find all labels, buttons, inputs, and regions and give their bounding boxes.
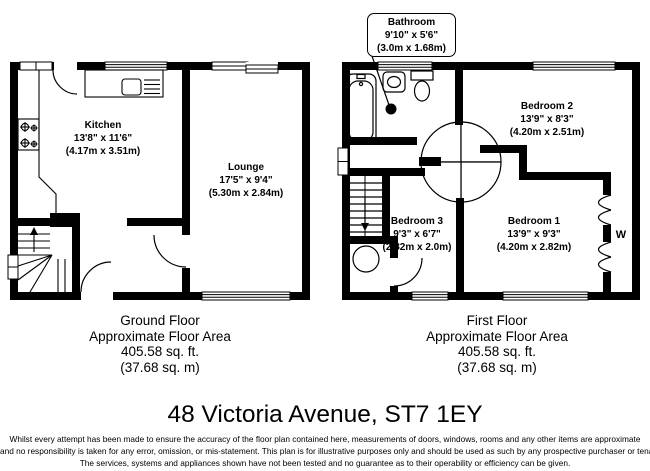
disclaimer-line: Whilst every attempt has been made to en… — [0, 433, 650, 445]
room-name: Bedroom 3 — [357, 215, 477, 228]
bedroom1-label: Bedroom 1 13'9" x 9'3" (4.20m x 2.82m) — [474, 215, 594, 254]
room-dims-metric: (4.17m x 3.51m) — [43, 145, 163, 158]
area-metric: (37.68 sq. m) — [60, 360, 260, 376]
stairs-up-icon — [18, 227, 65, 292]
callout-marker-dot — [386, 104, 397, 115]
room-dims-metric: (2.82m x 2.0m) — [357, 241, 477, 254]
callout-dims-metric: (3.0m x 1.68m) — [368, 42, 455, 55]
bedroom3-label: Bedroom 3 9'3" x 6'7" (2.82m x 2.0m) — [357, 215, 477, 254]
area-imperial: 405.58 sq. ft. — [397, 344, 597, 360]
address-title: 48 Victoria Avenue, ST7 1EY — [0, 401, 650, 429]
room-dims-imperial: 17'5" x 9'4" — [186, 174, 306, 187]
room-dims-imperial: 13'9" x 8'3" — [487, 113, 607, 126]
bedroom2-label: Bedroom 2 13'9" x 8'3" (4.20m x 2.51m) — [487, 100, 607, 139]
room-dims-imperial: 13'8" x 11'6" — [43, 132, 163, 145]
lounge-label: Lounge 17'5" x 9'4" (5.30m x 2.84m) — [186, 161, 306, 200]
room-dims-metric: (4.20m x 2.51m) — [487, 126, 607, 139]
room-dims-metric: (5.30m x 2.84m) — [186, 187, 306, 200]
room-dims-imperial: 13'9" x 9'3" — [474, 228, 594, 241]
room-name: Bedroom 1 — [474, 215, 594, 228]
first-floor-caption: First Floor Approximate Floor Area 405.5… — [397, 313, 597, 375]
room-name: Lounge — [186, 161, 306, 174]
area-label: Approximate Floor Area — [60, 329, 260, 345]
room-name: Bedroom 2 — [487, 100, 607, 113]
kitchen-door-arc — [53, 70, 77, 94]
callout-dims-imperial: 9'10" x 5'6" — [368, 29, 455, 42]
kitchen-sink-icon — [85, 70, 163, 97]
area-imperial: 405.58 sq. ft. — [60, 344, 260, 360]
bath-icon — [346, 74, 376, 144]
area-label: Approximate Floor Area — [397, 329, 597, 345]
lounge-door-arc — [154, 235, 186, 267]
room-dims-imperial: 9'3" x 6'7" — [357, 228, 477, 241]
wardrobe-label: W — [609, 229, 633, 241]
disclaimer-text: Whilst every attempt has been made to en… — [0, 433, 650, 469]
washbasin-icon — [383, 72, 405, 92]
callout-room-name: Bathroom — [368, 16, 455, 29]
toilet-icon — [411, 71, 433, 101]
area-metric: (37.68 sq. m) — [397, 360, 597, 376]
room-dims-metric: (4.20m x 2.82m) — [474, 241, 594, 254]
ground-floor-caption: Ground Floor Approximate Floor Area 405.… — [60, 313, 260, 375]
floor-name: Ground Floor — [60, 313, 260, 329]
floor-plan-page: Kitchen 13'8" x 11'6" (4.17m x 3.51m) Lo… — [0, 0, 650, 471]
disclaimer-line: The services, systems and appliances sho… — [0, 457, 650, 469]
floor-name: First Floor — [397, 313, 597, 329]
kitchen-label: Kitchen 13'8" x 11'6" (4.17m x 3.51m) — [43, 119, 163, 158]
kitchen-fixtures — [18, 70, 163, 292]
hob-icon — [18, 119, 39, 150]
entrance-door-arc — [81, 262, 111, 292]
cupboard-door-arc — [394, 258, 422, 286]
bathroom-callout: Bathroom 9'10" x 5'6" (3.0m x 1.68m) — [367, 13, 456, 57]
disclaimer-line: and no responsibility is taken for any e… — [0, 445, 650, 457]
room-name: Kitchen — [43, 119, 163, 132]
